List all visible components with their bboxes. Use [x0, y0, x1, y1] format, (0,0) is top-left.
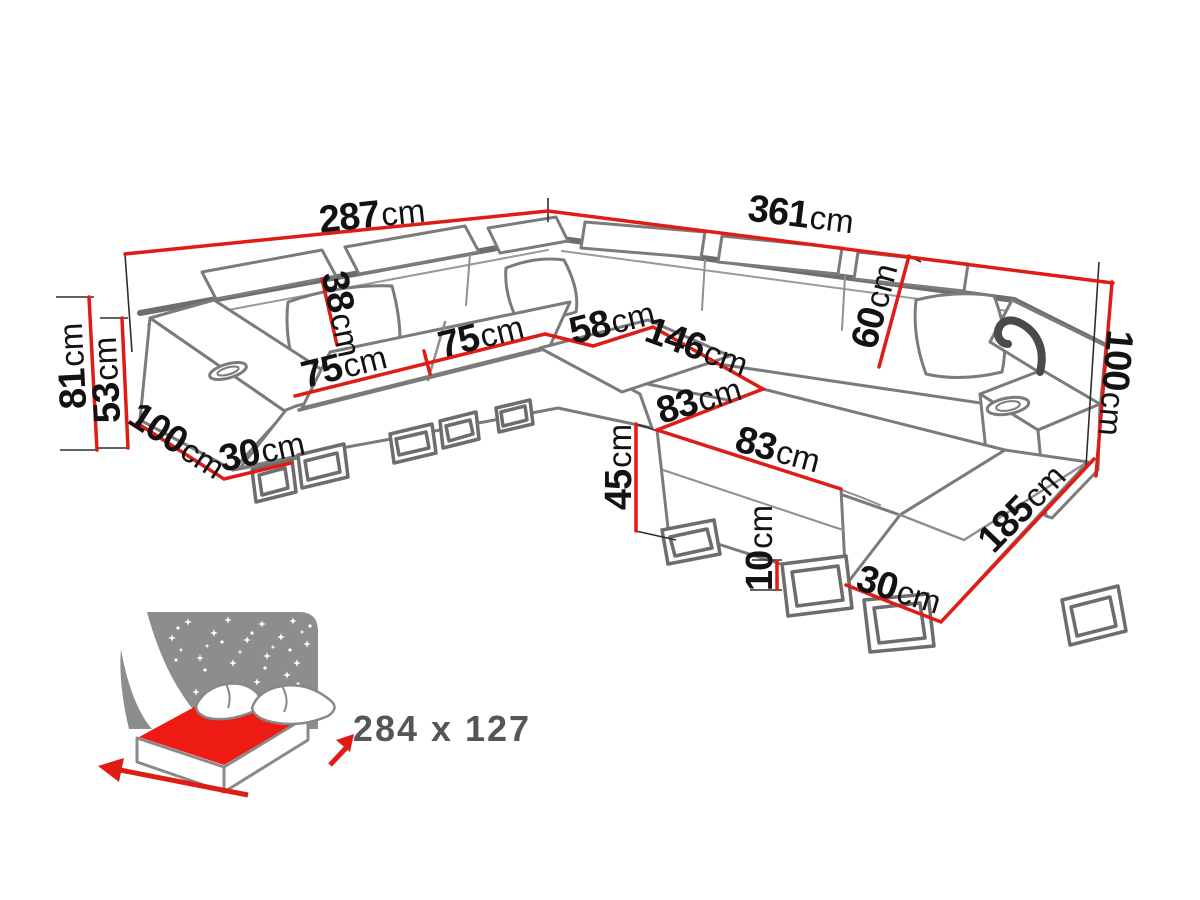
sofa-dimension-diagram: 287cm 361cm 81cm 53cm 100cm 30cm 38cm 75…	[0, 0, 1200, 900]
sleep-function-icon	[98, 612, 354, 795]
dimension-line-81	[89, 297, 97, 450]
dimension-line-53	[122, 318, 128, 448]
sofa-sketch	[140, 217, 1126, 652]
headrest-flaps	[202, 217, 968, 299]
pillow-right	[252, 685, 335, 724]
sleeping-area-size-label: 284 x 127	[353, 708, 531, 750]
diagram-canvas	[0, 0, 1200, 900]
bed-icon	[137, 683, 335, 792]
